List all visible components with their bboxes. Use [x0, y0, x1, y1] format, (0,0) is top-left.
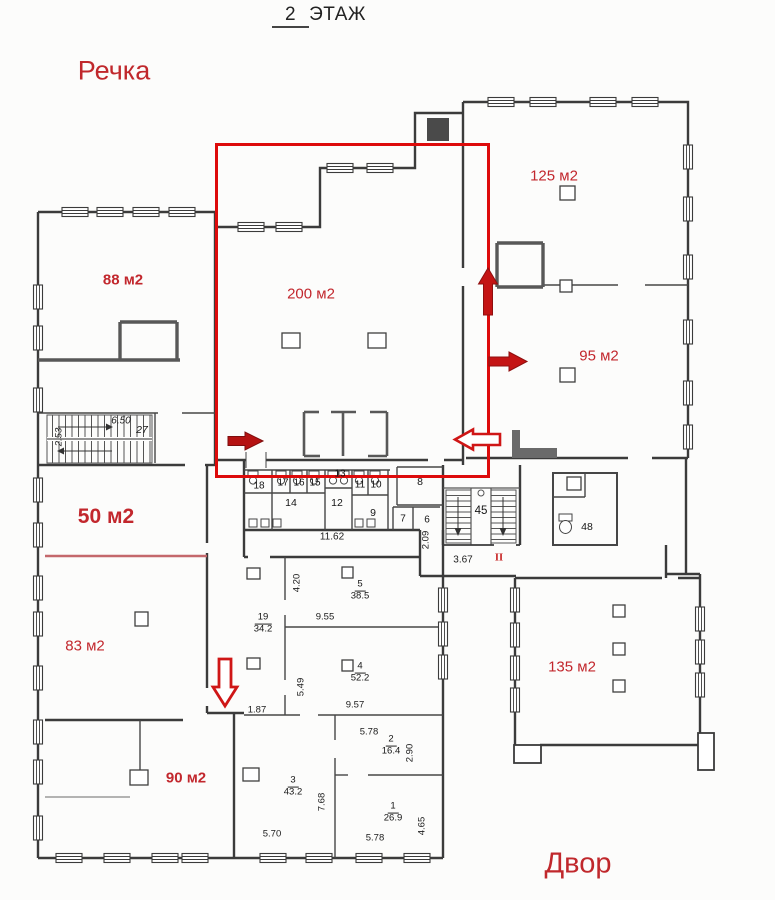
- room-3-frac: 3 43.2: [284, 776, 303, 799]
- dim-570: 5.70: [263, 829, 282, 840]
- door-openings: [246, 268, 467, 561]
- dim-209: 2.09: [421, 531, 432, 550]
- area-label-200: 200 м2: [287, 286, 335, 303]
- room-6: 6: [424, 515, 430, 526]
- dim-367: 3.67: [453, 555, 472, 566]
- area-label-83: 83 м2: [65, 638, 105, 655]
- area-label-88: 88 м2: [103, 272, 143, 289]
- room-19-area: 34.2: [254, 625, 273, 636]
- floor-title: 2ЭТАЖ: [272, 4, 366, 28]
- floorplan-drawing: [0, 0, 775, 900]
- room-19-frac: 19 34.2: [254, 613, 273, 636]
- river-label: Речка: [78, 56, 150, 87]
- room-2-frac: 2 16.4: [382, 735, 401, 758]
- room-48: 48: [581, 521, 593, 533]
- room-4-frac: 4 52.2: [351, 662, 370, 685]
- shaft: [427, 118, 449, 141]
- dim-578a: 5.78: [360, 727, 379, 738]
- thick-wall-stub: [512, 448, 557, 458]
- area-label-95: 95 м2: [579, 348, 619, 365]
- room-11: 11: [355, 480, 365, 491]
- room-12: 12: [331, 497, 343, 509]
- floor-word: ЭТАЖ: [309, 4, 366, 25]
- wall-pier: [698, 733, 714, 770]
- windows: [34, 98, 705, 863]
- room-5-frac: 5 38.5: [351, 580, 370, 603]
- dim-420: 4.20: [292, 574, 303, 593]
- room-18: 18: [253, 481, 264, 492]
- wall-pier: [514, 745, 541, 763]
- arrow-down-outline-icon: [213, 659, 237, 706]
- area-label-135: 135 м2: [548, 659, 596, 676]
- room-13: 13: [334, 469, 345, 480]
- room-3-area: 43.2: [284, 788, 303, 799]
- room-14: 14: [285, 497, 297, 509]
- room-7: 7: [400, 514, 406, 525]
- room-4-area: 52.2: [351, 674, 370, 685]
- room-2-area: 16.4: [382, 747, 401, 758]
- room-9: 9: [370, 507, 376, 519]
- dim-768: 7.68: [317, 793, 328, 812]
- room-8: 8: [417, 476, 423, 488]
- toilet-icon: [559, 514, 572, 534]
- arrow-right-icon: [228, 432, 263, 450]
- room-10: 10: [370, 480, 381, 491]
- entrance-mark-ii: II: [495, 553, 503, 564]
- area-label-90: 90 м2: [166, 770, 206, 787]
- red-highlight-rect: [217, 145, 489, 477]
- dim-955: 9.55: [316, 612, 335, 623]
- dim-290: 2.90: [405, 744, 416, 763]
- dim-253: 2.53: [54, 428, 65, 447]
- yard-label: Двор: [545, 848, 612, 881]
- room-27: 27: [136, 424, 148, 436]
- dim-1162: 11.62: [320, 532, 344, 543]
- arrow-right-icon: [489, 352, 527, 371]
- arrow-left-outline-icon: [455, 430, 500, 450]
- dim-465: 4.65: [417, 817, 428, 836]
- room-17: 17: [277, 478, 288, 489]
- floor-number: 2: [272, 4, 309, 28]
- floorplan-page: 2ЭТАЖ Речка Двор 88 м2 200 м2 125 м2 95 …: [0, 0, 775, 900]
- room-1-frac: 1 26.9: [384, 802, 403, 825]
- dim-549: 5.49: [296, 678, 307, 697]
- dim-187: 1.87: [248, 705, 267, 716]
- area-label-50: 50 м2: [78, 505, 134, 529]
- dim-650: 6.50: [111, 416, 130, 427]
- area-label-125: 125 м2: [530, 168, 578, 185]
- room-45: 45: [475, 505, 488, 517]
- dim-957: 9.57: [346, 700, 365, 711]
- room-1-area: 26.9: [384, 814, 403, 825]
- room-16: 16: [293, 478, 304, 489]
- room-5-area: 38.5: [351, 592, 370, 603]
- dim-578b: 5.78: [366, 833, 385, 844]
- room-15: 15: [309, 478, 320, 489]
- thick-wall-stub: [512, 430, 520, 448]
- arrow-up-icon: [479, 268, 498, 315]
